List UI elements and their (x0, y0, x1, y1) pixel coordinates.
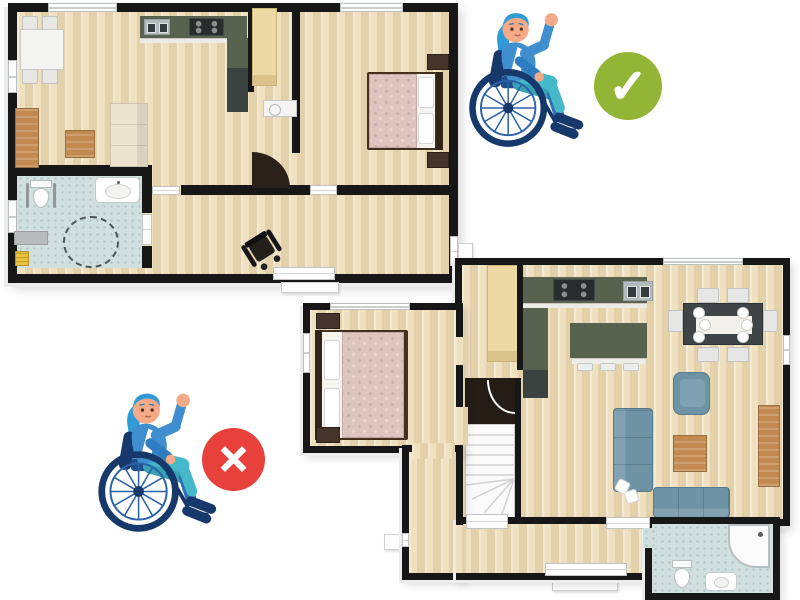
dining-table (20, 29, 64, 70)
floorplan-two-story (290, 255, 800, 600)
check-glyph: ✓ (609, 59, 648, 113)
window (48, 3, 117, 12)
closet-wardrobe (487, 265, 520, 362)
wall-segment (142, 246, 152, 268)
headboard (436, 72, 443, 150)
bathroom-door-patch (643, 528, 656, 548)
grab-bar (53, 183, 56, 208)
window (340, 3, 403, 12)
nightstand (316, 313, 340, 329)
dining-chair (22, 69, 38, 84)
door-opening (152, 186, 180, 195)
stair-landing (465, 378, 515, 424)
dining-chair (727, 347, 749, 362)
patio-door-sill (545, 563, 627, 576)
sideboard (758, 405, 780, 487)
check-icon: ✓ (594, 52, 662, 120)
coffee-table (673, 435, 707, 472)
x-glyph: ✕ (218, 438, 250, 482)
window (303, 333, 310, 373)
bathroom-vanity (95, 177, 140, 203)
window (8, 200, 17, 233)
bathroom-section (645, 517, 780, 600)
wall-segment (337, 185, 449, 195)
window (663, 258, 743, 265)
bedroom-section (303, 303, 463, 453)
refrigerator (227, 68, 248, 112)
bathroom-bench (14, 231, 48, 245)
pillow (418, 113, 434, 144)
kitchen-island (570, 323, 647, 358)
bathroom-door-sill (142, 214, 152, 245)
dining-chair (668, 310, 683, 332)
opening-patch (412, 443, 455, 459)
wall-segment (515, 378, 521, 519)
pillow (418, 77, 434, 108)
door-swing-arc (487, 380, 515, 414)
floorplan-accessible (8, 3, 458, 283)
nightstand (427, 152, 449, 168)
entry-door-sill (402, 533, 409, 547)
wall-segment (292, 12, 300, 153)
winder-staircase (465, 424, 515, 519)
opening-patch (454, 525, 466, 573)
patio-step (552, 579, 618, 591)
nightstand (427, 54, 449, 70)
washer (263, 100, 297, 117)
opening-patch (455, 337, 468, 365)
stair-threshold (466, 514, 508, 529)
step-stool (15, 251, 29, 266)
armchair (673, 372, 710, 415)
dining-chair (727, 288, 749, 303)
pillow (324, 388, 340, 428)
bar-stool (600, 363, 616, 371)
nightstand (316, 427, 340, 443)
pantry-cabinet (252, 8, 277, 86)
window (783, 335, 790, 365)
bed-duvet (369, 74, 417, 148)
bed (367, 72, 443, 150)
wood-floor (409, 452, 456, 573)
dining-chair (42, 69, 58, 84)
coffee-table (65, 130, 95, 158)
kitchen-counter-l (227, 38, 248, 68)
opening-patch (455, 407, 468, 445)
kitchen-sink (623, 281, 653, 301)
wheelchair-user-illustration (465, 4, 587, 150)
bathroom-sink (705, 572, 737, 591)
sofa (110, 103, 148, 167)
bar-stool (577, 363, 593, 371)
refrigerator (523, 370, 548, 398)
bedroom-door-sill (310, 185, 337, 195)
wheelchair-turning-circle (63, 216, 119, 268)
stove-cooktop (189, 18, 224, 36)
dining-chair (697, 347, 719, 362)
pillow (324, 340, 340, 380)
entry-step (384, 534, 404, 550)
x-icon: ✕ (202, 428, 265, 491)
dining-table (683, 303, 763, 345)
window (8, 60, 17, 93)
kitchen-counter-l (523, 308, 548, 370)
sideboard (15, 108, 39, 168)
bar-stool (623, 363, 639, 371)
main-living-section (455, 258, 790, 526)
bed (315, 330, 408, 440)
stove-cooktop (553, 279, 595, 301)
illustration-canvas: ✓ ✕ (0, 0, 800, 600)
wall-segment (142, 165, 152, 213)
bed-duvet (342, 332, 404, 438)
dining-chair (763, 310, 778, 332)
wall-segment (292, 185, 310, 195)
toilet-tank (30, 180, 52, 188)
dining-chair (697, 288, 719, 303)
sectional-sofa-horizontal (653, 487, 730, 518)
toilet-tank (672, 560, 692, 568)
kitchen-sink (144, 19, 170, 35)
window (330, 303, 410, 310)
headboard (315, 330, 322, 440)
grab-bar (26, 183, 29, 208)
